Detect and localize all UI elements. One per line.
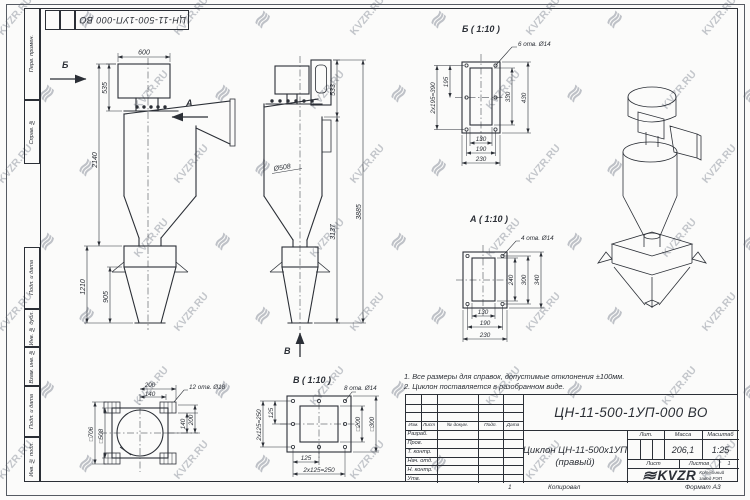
dim-label: 200 [188,414,195,426]
dim-label: 905 [103,291,110,303]
part-name: Циклон ЦН-11-500х1УП(правый) [523,431,628,483]
sheets-label: Листов [679,459,719,468]
col-header-podp: Подп. [478,421,503,430]
kvzr-logo-icon: ≋ [641,467,656,484]
company-cell: ≋ KVZR Котельныйзавод РЭП [628,468,739,483]
dim-label: 2х125=250 [302,467,335,474]
dim-label: 190 [476,146,487,153]
col-header-list: Лист [421,421,437,430]
dim-label: □508 [98,428,105,443]
hole-callout-v: 8 отв. Ø14 [344,385,377,392]
dim-label: 300 [521,274,528,285]
dim-label: 240 [508,274,515,286]
isometric-view [598,87,706,308]
hole-callout-top: 12 отв. Ø18 [189,384,226,391]
row-razrab: Разраб. [408,430,438,439]
col-header-izm: Изм. [406,421,421,430]
doc-number: ЦН-11-500-1УП-000 ВО [523,395,739,431]
dim-label: 140 [180,418,187,429]
hole-callout-b: 6 отв. Ø14 [518,41,551,48]
detail-title-a: А ( 1:10 ) [469,214,508,224]
footer-copy-number: 1 [508,484,512,491]
dim-label: □300 [369,416,376,431]
grid-line [640,440,641,459]
hole-callout-a: 4 отв. Ø14 [521,235,554,242]
grid-line [406,404,523,405]
col-header-data: Дата [503,421,523,430]
dim-label: 330 [505,91,512,102]
col-header-dokum: № докум. [437,421,478,430]
part-name-line1: Циклон ЦН-11-500х1УП [523,445,627,457]
dim-label: □706 [88,426,95,441]
dim-label: 130 [478,309,489,316]
dim-label: 140 [145,391,156,398]
mass-header: Масса [664,431,702,440]
dim-label: 200 [144,382,156,389]
dim-label: 3137 [330,223,337,240]
part-name-line2: (правый) [523,457,627,469]
mass-value: 206,1 [664,440,702,459]
sheets-value: 1 [719,459,739,468]
dim-label: 533 [330,84,337,96]
dim-label: 3885 [356,204,363,220]
view-arrow-label-v: В [284,346,291,356]
detail-title-b: Б ( 1:10 ) [462,24,500,34]
detail-view-v: В ( 1:10 ) 8 отв. Ø14 125 2х125=250 □200… [256,375,379,477]
view-arrow-label-b: Б [62,60,69,70]
row-prov: Пров. [408,439,438,448]
view-arrow-label-a: А [185,98,193,108]
detail-view-a: А ( 1:10 ) 4 отв. Ø14 240 300 340 130 [456,214,554,342]
dim-label: □200 [355,416,362,431]
detail-title-v: В ( 1:10 ) [293,375,331,385]
dim-label: 230 [475,156,487,163]
dim-label: 125 [268,407,275,418]
side-view: 600 535 2140 1210 905 Б А [50,50,235,331]
kvzr-logo-text: KVZR [658,468,697,483]
footer-copied: Копировал [548,484,580,491]
dim-label: 190 [480,320,491,327]
company-name: Котельныйзавод РЭП [699,470,724,480]
dim-label: 130 [476,136,487,143]
dim-label: 2140 [92,152,99,169]
dim-label: 535 [102,82,109,94]
grid-line [652,440,653,459]
row-tkontr: Т. контр. [408,448,438,457]
dim-label: 1210 [80,279,87,295]
grid-line [406,412,523,413]
dim-label: 125 [301,455,312,462]
dim-label: 230 [479,332,491,339]
dim-label: 340 [534,274,541,285]
top-view: 200 140 12 отв. Ø18 140 200 □706 □508 [88,382,226,472]
row-nachotd: Нач. отд. [408,457,438,466]
dim-label: 2х125=250 [256,409,263,442]
row-utv: Утв. [408,474,438,483]
dim-label: 2х195=390 [430,82,437,115]
dim-label: 195 [443,76,450,87]
row-nkontr: Н. контр. [408,465,438,474]
lit-header: Лит. [628,431,664,440]
dim-label: 430 [521,92,528,103]
detail-view-b: Б ( 1:10 ) 6 отв. Ø14 2х195=390 195 330 … [430,24,551,166]
dim-label: 600 [138,50,150,57]
drawing-sheet: KVZR.RU≋KVZR.RU≋KVZR.RU≋KVZR.RU≋KVZR.RU≋… [0,0,750,500]
scale-header: Масштаб [702,431,739,440]
footer-format: Формат А3 [685,484,721,491]
title-block: Изм. Лист № докум. Подп. Дата Разраб. Пр… [405,394,738,482]
front-view: Ø508 533 3137 3885 В [264,56,366,357]
scale-value: 1:25 [702,440,739,459]
